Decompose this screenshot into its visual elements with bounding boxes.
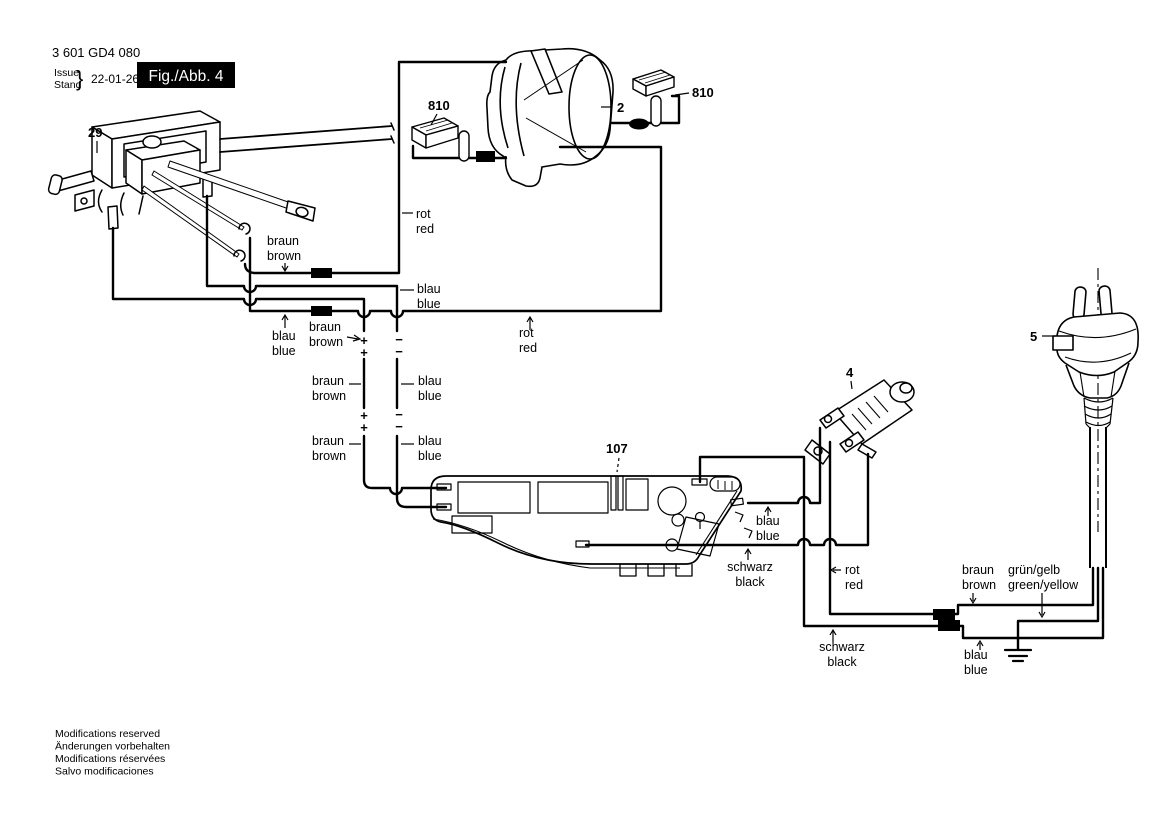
callout-field-coil-2: 2	[617, 100, 624, 115]
callout-module-107: 107	[606, 441, 628, 456]
ring-terminal	[286, 201, 315, 221]
footer-line-3: Modifications réservées	[55, 753, 165, 765]
svg-text:rot: rot	[416, 207, 431, 221]
svg-text:blau: blau	[756, 514, 780, 528]
splice-braun-rot	[311, 268, 332, 278]
wiring-diagram-page: 3 601 GD4 080 Issue Stand } 22-01-26 Fig…	[0, 0, 1169, 826]
callout-plug-5: 5	[1030, 329, 1037, 344]
svg-text:black: black	[827, 655, 857, 669]
svg-text:blau: blau	[417, 282, 441, 296]
svg-text:schwarz: schwarz	[727, 560, 773, 574]
svg-text:blue: blue	[756, 529, 780, 543]
ground-symbol	[1005, 650, 1031, 661]
svg-text:blau: blau	[272, 329, 296, 343]
callout-micro-switch-4: 4	[846, 365, 854, 380]
title-block: 3 601 GD4 080 Issue Stand } 22-01-26 Fig…	[52, 45, 235, 91]
svg-text:braun: braun	[267, 234, 299, 248]
svg-text:blau: blau	[964, 648, 988, 662]
field-coil-2-drawing	[487, 49, 613, 187]
minus-mark: −	[395, 344, 403, 359]
plus-mark: +	[360, 420, 368, 435]
svg-text:brown: brown	[962, 578, 996, 592]
svg-text:blau: blau	[418, 434, 442, 448]
svg-text:green/yellow: green/yellow	[1008, 578, 1079, 592]
plug-pin	[1073, 287, 1087, 320]
splice-rot-braun	[933, 609, 955, 620]
svg-text:red: red	[845, 578, 863, 592]
svg-text:black: black	[735, 575, 765, 589]
svg-text:blue: blue	[417, 297, 441, 311]
wiring-diagram: 3 601 GD4 080 Issue Stand } 22-01-26 Fig…	[0, 0, 1169, 826]
svg-text:brown: brown	[267, 249, 301, 263]
svg-text:braun: braun	[309, 320, 341, 334]
wire-label-blau-conn1: blau blue	[401, 374, 442, 403]
footer-notes: Modifications reserved Änderungen vorbeh…	[55, 728, 170, 778]
svg-text:blau: blau	[418, 374, 442, 388]
svg-text:red: red	[416, 222, 434, 236]
svg-text:grün/gelb: grün/gelb	[1008, 563, 1060, 577]
svg-text:braun: braun	[312, 374, 344, 388]
wire-label-blau-cord: blau blue	[964, 641, 988, 677]
wire-label-blau-switch: blau blue	[400, 282, 441, 311]
wire-label-braun-switch: braun brown	[267, 234, 301, 271]
brush-spring-right	[651, 96, 661, 126]
issue-date: 22-01-26	[91, 72, 139, 86]
svg-text:braun: braun	[962, 563, 994, 577]
wire-label-braun-plus: braun brown	[309, 320, 360, 349]
wire-label-braun-conn1: braun brown	[312, 374, 361, 403]
wire-label-braun-conn2: braun brown	[312, 434, 361, 463]
svg-text:red: red	[519, 341, 537, 355]
carbon-brush-right-810	[633, 70, 674, 96]
svg-text:blue: blue	[418, 449, 442, 463]
switch-terminal-left	[108, 206, 118, 229]
wire-label-schwarz-splice: schwarz black	[819, 630, 865, 669]
splice-schwarz-blau	[938, 620, 960, 631]
callout-switch-29: 29	[88, 125, 102, 140]
power-plug-5-drawing	[1053, 268, 1138, 568]
minus-mark: −	[395, 419, 403, 434]
svg-text:blue: blue	[964, 663, 988, 677]
callout-brush-left-810: 810	[428, 98, 450, 113]
wire-label-gruengelb-cord: grün/gelb green/yellow	[1008, 563, 1079, 617]
wire-label-blau-splice: blau blue	[272, 315, 296, 358]
svg-text:rot: rot	[845, 563, 860, 577]
svg-text:rot: rot	[519, 326, 534, 340]
micro-switch-4-drawing	[805, 380, 914, 464]
carbon-brush-left-810	[412, 118, 458, 148]
module-pin	[648, 564, 664, 576]
svg-text:blue: blue	[418, 389, 442, 403]
wire-label-schwarz-module: schwarz black	[727, 549, 773, 589]
splice-brush-left	[476, 151, 495, 162]
wire-label-rot-field-top: rot red	[402, 207, 434, 236]
svg-text:schwarz: schwarz	[819, 640, 865, 654]
svg-text:braun: braun	[312, 434, 344, 448]
module-pin	[676, 564, 692, 576]
brace-glyph: }	[76, 66, 83, 91]
splice-blau-rot	[311, 306, 332, 316]
svg-text:blue: blue	[272, 344, 296, 358]
svg-text:brown: brown	[309, 335, 343, 349]
wire-label-rot-switch4: rot red	[831, 563, 863, 592]
footer-line-4: Salvo modificaciones	[55, 766, 154, 778]
plus-mark: +	[360, 345, 368, 360]
svg-text:brown: brown	[312, 389, 346, 403]
wire-label-blau-conn2: blau blue	[401, 434, 442, 463]
wire-label-braun-cord: braun brown	[962, 563, 996, 603]
wire-label-rot-splice: rot red	[519, 317, 537, 355]
part-number: 3 601 GD4 080	[52, 45, 140, 60]
brush-spring-left	[459, 131, 469, 161]
fig-label: Fig./Abb. 4	[149, 68, 224, 85]
callout-brush-right-810: 810	[692, 85, 714, 100]
svg-text:brown: brown	[312, 449, 346, 463]
wire-blau-rot-field-bottom	[250, 147, 661, 317]
wire-blau-module-switch4	[748, 428, 820, 503]
footer-line-2: Änderungen vorbehalten	[55, 741, 170, 753]
footer-line-1: Modifications reserved	[55, 728, 160, 740]
wire-label-blau-module: blau blue	[756, 507, 780, 543]
module-107-drawing	[431, 476, 752, 576]
splice-brush-right	[629, 119, 649, 130]
module-pin	[620, 564, 636, 576]
